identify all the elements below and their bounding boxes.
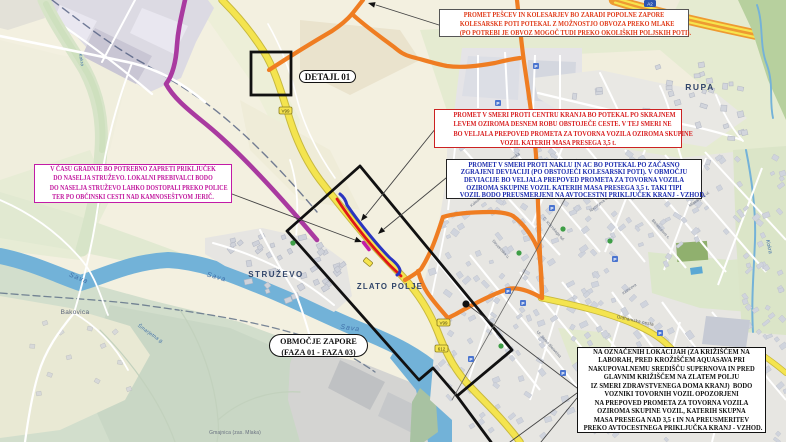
svg-text:V99: V99 bbox=[439, 321, 448, 326]
svg-text:STRUŽEVO: STRUŽEVO bbox=[248, 270, 304, 279]
svg-text:ZLATO POLJE: ZLATO POLJE bbox=[357, 282, 423, 291]
svg-text:RUPA: RUPA bbox=[685, 82, 714, 92]
svg-text:612: 612 bbox=[438, 347, 446, 352]
svg-text:V99: V99 bbox=[281, 109, 290, 114]
svg-text:Bakovica: Bakovica bbox=[61, 309, 90, 316]
svg-text:A2: A2 bbox=[647, 2, 653, 7]
svg-text:Gmajnica (zas. Mlaka): Gmajnica (zas. Mlaka) bbox=[209, 430, 261, 436]
